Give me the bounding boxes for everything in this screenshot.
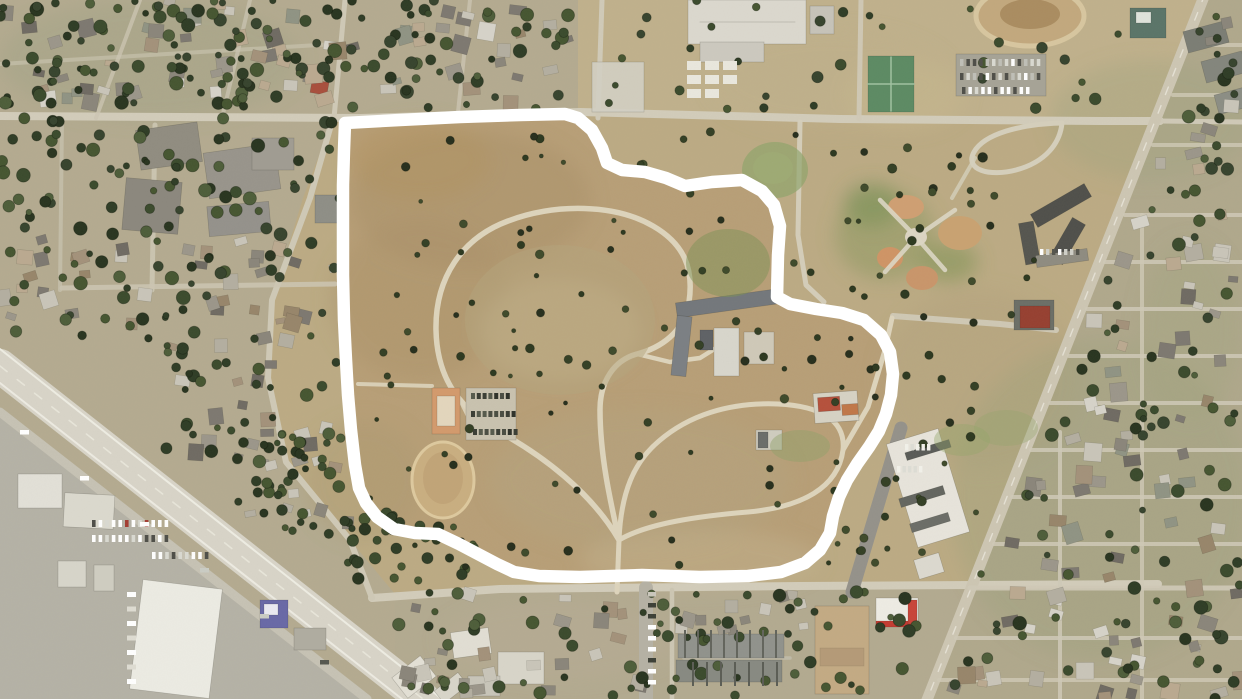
photo-grain (0, 0, 1242, 699)
satellite-map-screenshot (0, 0, 1242, 699)
map-canvas (0, 0, 1242, 699)
